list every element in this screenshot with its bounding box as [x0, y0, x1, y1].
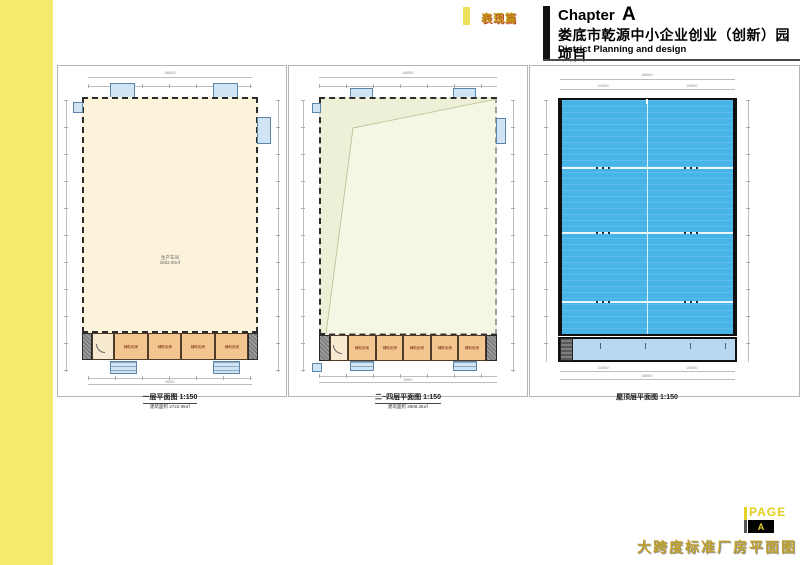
- lower-roof-tick: [690, 343, 691, 349]
- dim-line: [319, 77, 497, 78]
- gutter-marks: [596, 167, 612, 169]
- page-word: PAGE: [749, 505, 786, 519]
- dim-label: 48000: [150, 71, 190, 75]
- stair-core: [82, 333, 92, 360]
- header-tab-label: 表现篇: [481, 10, 517, 26]
- aux-room: 辅助用房: [431, 335, 458, 361]
- header-tab-bar: [463, 7, 470, 25]
- room-label: 辅助用房: [191, 344, 205, 349]
- dim-label: 48000: [388, 71, 428, 75]
- room-label: 辅助用房: [382, 345, 396, 350]
- gutter-marks: [684, 167, 700, 169]
- sidebar-yellow-band: [0, 0, 53, 565]
- stair-room: [92, 333, 114, 360]
- hall-label: 生产车间 2592.00㎡: [140, 255, 200, 265]
- dim-line: [88, 77, 252, 78]
- plan-caption: 屋顶层平面图 1:150: [592, 386, 702, 404]
- dim-label: 24000: [672, 366, 712, 370]
- dim-label: 24000: [583, 366, 623, 370]
- dim-line: [560, 371, 735, 372]
- entrance-canopy: [213, 83, 238, 98]
- room-label: 辅助用房: [437, 345, 451, 350]
- sheet-title: 大跨度标准厂房平面图: [637, 537, 797, 557]
- dim-ticks: [64, 100, 68, 372]
- page-marker-bar-yellow: [744, 507, 747, 520]
- aux-room: 辅助用房: [148, 333, 181, 360]
- dim-line: [88, 384, 252, 385]
- stair-room: [330, 335, 348, 361]
- ridge-tick: [646, 99, 648, 104]
- gutter-marks: [684, 232, 700, 234]
- roof-ridge-line: [647, 100, 648, 334]
- void-outline-diagonals: [319, 97, 497, 335]
- entrance-steps: [350, 361, 374, 371]
- aux-room: 辅助用房: [114, 333, 148, 360]
- lower-roof-tick: [725, 343, 726, 349]
- dim-line: [560, 89, 735, 90]
- header-divider-bar: [543, 6, 550, 59]
- caption-title: 屋顶层平面图 1:150: [616, 394, 678, 403]
- plan-caption: 一层平面图 1:150 建筑面积 2722.95㎡: [115, 386, 225, 409]
- room-label: 辅助用房: [157, 344, 171, 349]
- side-door-canopy: [312, 103, 321, 113]
- side-door-canopy: [73, 102, 83, 113]
- room-label: 辅助用房: [355, 345, 369, 350]
- room-label: 辅助用房: [465, 345, 479, 350]
- page-letter: A: [758, 522, 765, 532]
- entrance-steps: [110, 361, 137, 374]
- lower-roof-tick: [645, 343, 646, 349]
- dim-ticks: [276, 100, 280, 372]
- aux-room: 辅助用房: [348, 335, 376, 361]
- dim-label: 24000: [583, 84, 623, 88]
- stair-core: [319, 335, 330, 361]
- page-letter-box: A: [748, 520, 774, 533]
- aux-room: 辅助用房: [181, 333, 215, 360]
- door-swing-arc: [96, 344, 105, 353]
- entrance-canopy: [110, 83, 135, 98]
- header-underline: [543, 59, 800, 61]
- caption-sub: 建筑面积 2722.95㎡: [115, 404, 225, 409]
- hall-area-text: 2592.00㎡: [140, 260, 200, 265]
- dim-label: 8000: [388, 378, 428, 382]
- caption-title: 二~四层平面图 1:150: [375, 394, 441, 404]
- aux-room: 辅助用房: [376, 335, 403, 361]
- dim-label: 48000: [627, 73, 667, 77]
- stair-core: [486, 335, 497, 361]
- lower-roof-tick: [600, 343, 601, 349]
- dim-line: [319, 382, 497, 383]
- dim-line: [560, 379, 735, 380]
- corner-canopy: [312, 363, 322, 372]
- chapter-letter: A: [622, 4, 636, 26]
- stair-core: [248, 333, 258, 360]
- aux-room: 辅助用房: [215, 333, 248, 360]
- dim-ticks: [544, 100, 548, 362]
- room-label: 辅助用房: [224, 344, 238, 349]
- gutter-marks: [684, 301, 700, 303]
- door-swing-arc: [333, 345, 342, 354]
- side-ramp: [257, 117, 271, 144]
- project-subtitle: District Planning and design: [558, 44, 686, 55]
- plan-caption: 二~四层平面图 1:150 建筑面积 2608.35㎡: [353, 386, 463, 409]
- gutter-marks: [596, 301, 612, 303]
- factory-hall-floor1: [82, 97, 258, 333]
- roof-valley-line: [562, 167, 733, 169]
- dim-ticks: [301, 100, 305, 372]
- dim-label: 8000: [150, 380, 190, 384]
- chapter-word: Chapter: [558, 7, 615, 24]
- side-canopy: [496, 118, 506, 144]
- entrance-steps: [453, 361, 477, 371]
- dim-label: 48000: [627, 374, 667, 378]
- page-marker-bar-gray: [744, 520, 747, 533]
- dim-ticks: [746, 100, 750, 362]
- roof-stair-bulkhead: [560, 338, 573, 361]
- aux-room: 辅助用房: [403, 335, 431, 361]
- dim-label: 24000: [672, 84, 712, 88]
- roof-valley-line: [562, 232, 733, 234]
- room-label: 辅助用房: [410, 345, 424, 350]
- caption-sub: 建筑面积 2608.35㎡: [353, 404, 463, 409]
- dim-ticks: [511, 100, 515, 372]
- dim-line: [560, 79, 735, 80]
- caption-title: 一层平面图 1:150: [143, 394, 198, 404]
- room-label: 辅助用房: [124, 344, 138, 349]
- lower-roof: [558, 337, 737, 362]
- design-sheet: 表现篇 Chapter A 娄底市乾源中小企业创业（创新）园项目 Distric…: [0, 0, 800, 565]
- gutter-marks: [596, 232, 612, 234]
- roof-valley-line: [562, 301, 733, 303]
- entrance-steps: [213, 361, 240, 374]
- aux-room: 辅助用房: [458, 335, 486, 361]
